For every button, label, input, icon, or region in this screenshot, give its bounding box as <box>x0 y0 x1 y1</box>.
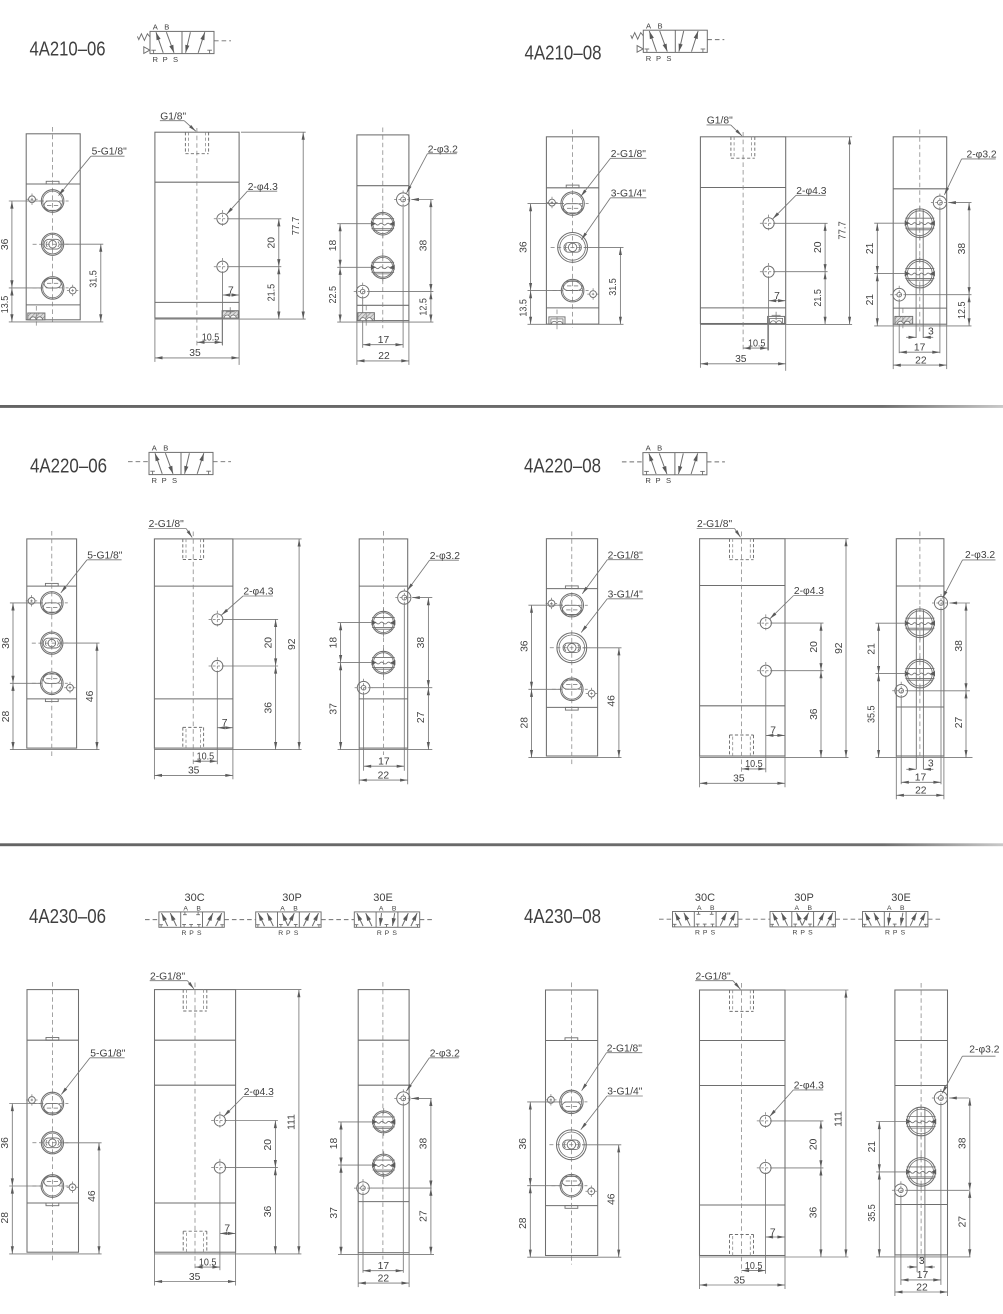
svg-text:5-G1/8": 5-G1/8" <box>92 146 127 157</box>
svg-text:36: 36 <box>809 708 820 720</box>
svg-text:B: B <box>710 905 715 912</box>
svg-text:36: 36 <box>0 1137 11 1149</box>
svg-text:46: 46 <box>87 1190 98 1202</box>
svg-text:20: 20 <box>809 1138 820 1150</box>
svg-text:27: 27 <box>419 1210 430 1222</box>
svg-text:28: 28 <box>0 1212 11 1224</box>
svg-text:77.7: 77.7 <box>837 221 848 240</box>
svg-text:27: 27 <box>958 1216 969 1228</box>
svg-text:18: 18 <box>329 1138 340 1150</box>
svg-text:4A220–08: 4A220–08 <box>524 454 601 477</box>
svg-text:R: R <box>793 930 798 937</box>
svg-text:13.5: 13.5 <box>0 296 11 314</box>
svg-text:22.5: 22.5 <box>328 286 339 304</box>
svg-text:38: 38 <box>958 1137 969 1149</box>
svg-text:22: 22 <box>378 1273 390 1284</box>
svg-text:10.5: 10.5 <box>199 1257 217 1268</box>
svg-text:A: A <box>697 905 702 912</box>
svg-text:30E: 30E <box>373 892 393 904</box>
svg-text:3: 3 <box>928 758 934 769</box>
svg-text:R: R <box>695 930 700 937</box>
svg-text:S: S <box>808 930 813 937</box>
svg-text:35: 35 <box>735 354 747 365</box>
svg-text:27: 27 <box>416 711 427 723</box>
svg-text:30P: 30P <box>794 892 814 904</box>
svg-text:38: 38 <box>954 640 965 652</box>
svg-text:46: 46 <box>607 1193 618 1205</box>
svg-text:3: 3 <box>919 1256 925 1267</box>
svg-text:37: 37 <box>328 703 339 715</box>
svg-text:36: 36 <box>809 1207 820 1219</box>
svg-text:7: 7 <box>770 1227 776 1238</box>
svg-text:21.5: 21.5 <box>813 289 824 307</box>
svg-text:B: B <box>658 21 663 30</box>
svg-text:P: P <box>656 54 661 63</box>
svg-text:35.5: 35.5 <box>866 705 877 723</box>
svg-text:P: P <box>162 476 167 485</box>
svg-text:R: R <box>645 476 651 485</box>
svg-text:20: 20 <box>813 241 824 253</box>
svg-text:4A210–08: 4A210–08 <box>525 42 602 65</box>
svg-text:28: 28 <box>519 717 530 729</box>
svg-text:R: R <box>377 930 382 937</box>
svg-text:31.5: 31.5 <box>89 270 100 288</box>
svg-text:22: 22 <box>915 355 927 366</box>
svg-text:12.5: 12.5 <box>957 301 968 319</box>
svg-text:17: 17 <box>378 335 390 346</box>
svg-text:30C: 30C <box>695 892 715 904</box>
svg-text:3: 3 <box>928 326 934 337</box>
svg-text:92: 92 <box>287 638 298 650</box>
svg-text:R: R <box>278 930 283 937</box>
svg-text:R: R <box>152 55 158 64</box>
svg-text:22: 22 <box>378 770 390 781</box>
svg-text:28: 28 <box>518 1217 529 1229</box>
svg-text:A: A <box>183 905 188 912</box>
svg-text:2-φ3.2: 2-φ3.2 <box>969 1045 999 1056</box>
svg-text:17: 17 <box>917 1270 929 1281</box>
svg-text:S: S <box>392 930 397 937</box>
svg-text:P: P <box>656 476 661 485</box>
svg-text:35.5: 35.5 <box>867 1204 878 1222</box>
svg-text:13.5: 13.5 <box>518 299 529 317</box>
svg-text:46: 46 <box>85 690 96 702</box>
svg-text:B: B <box>163 444 168 453</box>
svg-text:B: B <box>808 905 813 912</box>
svg-text:7: 7 <box>770 726 776 737</box>
svg-text:36: 36 <box>263 702 274 714</box>
svg-text:2-φ3.2: 2-φ3.2 <box>965 550 995 561</box>
svg-text:27: 27 <box>954 717 965 729</box>
svg-text:P: P <box>189 930 194 937</box>
svg-text:17: 17 <box>914 343 926 354</box>
svg-text:36: 36 <box>263 1206 274 1218</box>
svg-text:7: 7 <box>228 285 234 296</box>
svg-text:S: S <box>172 476 177 485</box>
svg-text:38: 38 <box>957 243 968 255</box>
svg-text:20: 20 <box>263 1139 274 1151</box>
svg-text:92: 92 <box>834 642 845 654</box>
svg-text:B: B <box>164 23 169 32</box>
svg-text:4A230–06: 4A230–06 <box>29 905 106 928</box>
svg-text:4A230–08: 4A230–08 <box>524 905 601 928</box>
svg-text:77.7: 77.7 <box>291 217 302 236</box>
svg-text:S: S <box>901 930 906 937</box>
svg-text:R: R <box>885 930 890 937</box>
svg-text:A: A <box>280 905 285 912</box>
svg-text:S: S <box>294 930 299 937</box>
svg-text:36: 36 <box>519 640 530 652</box>
svg-text:20: 20 <box>809 641 820 653</box>
svg-text:B: B <box>657 444 662 453</box>
svg-text:36: 36 <box>1 637 12 649</box>
svg-text:36: 36 <box>518 1138 529 1150</box>
svg-text:7: 7 <box>774 291 780 302</box>
svg-text:R: R <box>181 930 186 937</box>
svg-text:P: P <box>800 930 805 937</box>
svg-text:10.5: 10.5 <box>197 752 215 763</box>
svg-text:35: 35 <box>189 1272 201 1283</box>
svg-text:B: B <box>900 905 905 912</box>
svg-text:37: 37 <box>329 1207 340 1219</box>
svg-text:B: B <box>196 905 201 912</box>
svg-text:21: 21 <box>865 242 876 254</box>
svg-text:R: R <box>151 476 157 485</box>
svg-text:22: 22 <box>915 786 927 797</box>
svg-text:S: S <box>173 55 178 64</box>
svg-text:A: A <box>795 905 800 912</box>
svg-text:17: 17 <box>378 757 390 768</box>
svg-text:21: 21 <box>866 643 877 655</box>
svg-text:21: 21 <box>865 294 876 306</box>
svg-text:S: S <box>666 54 671 63</box>
svg-text:10.5: 10.5 <box>745 1261 763 1272</box>
svg-text:4A210–06: 4A210–06 <box>30 38 106 61</box>
svg-text:20: 20 <box>267 237 278 249</box>
svg-text:20: 20 <box>263 637 274 649</box>
svg-text:38: 38 <box>416 637 427 649</box>
svg-text:46: 46 <box>607 695 618 707</box>
svg-text:10.5: 10.5 <box>748 338 766 349</box>
svg-text:B: B <box>293 905 298 912</box>
svg-text:36: 36 <box>518 241 529 253</box>
svg-text:111: 111 <box>834 1111 845 1127</box>
svg-text:38: 38 <box>419 1138 430 1150</box>
svg-text:P: P <box>893 930 898 937</box>
svg-text:S: S <box>197 930 202 937</box>
svg-text:31.5: 31.5 <box>608 278 619 296</box>
svg-text:7: 7 <box>222 718 228 729</box>
svg-text:18: 18 <box>328 240 339 252</box>
svg-text:21: 21 <box>867 1141 878 1153</box>
svg-text:12.5: 12.5 <box>419 298 430 316</box>
svg-text:P: P <box>385 930 390 937</box>
svg-text:S: S <box>711 930 716 937</box>
svg-text:P: P <box>286 930 291 937</box>
svg-text:18: 18 <box>328 637 339 649</box>
svg-text:A: A <box>379 905 384 912</box>
svg-text:30E: 30E <box>891 892 911 904</box>
svg-text:30C: 30C <box>185 892 205 904</box>
svg-text:35: 35 <box>188 766 200 777</box>
svg-text:4A220–06: 4A220–06 <box>30 454 107 477</box>
svg-text:22: 22 <box>916 1282 928 1293</box>
svg-text:35: 35 <box>189 348 201 359</box>
svg-text:10.5: 10.5 <box>202 333 220 344</box>
svg-text:22: 22 <box>378 351 390 362</box>
svg-text:35: 35 <box>733 774 745 785</box>
svg-text:B: B <box>392 905 397 912</box>
svg-text:S: S <box>666 476 671 485</box>
svg-text:A: A <box>887 905 892 912</box>
svg-text:21.5: 21.5 <box>267 284 278 302</box>
svg-text:28: 28 <box>1 711 12 723</box>
svg-text:10.5: 10.5 <box>745 759 763 770</box>
svg-text:38: 38 <box>419 240 430 252</box>
svg-text:R: R <box>646 54 652 63</box>
svg-text:7: 7 <box>224 1224 230 1235</box>
svg-text:111: 111 <box>287 1114 298 1130</box>
svg-text:35: 35 <box>734 1275 746 1286</box>
svg-text:P: P <box>703 930 708 937</box>
svg-text:30P: 30P <box>282 892 302 904</box>
svg-text:17: 17 <box>915 773 927 784</box>
svg-text:P: P <box>163 55 168 64</box>
svg-text:36: 36 <box>0 238 11 250</box>
svg-text:17: 17 <box>378 1261 390 1272</box>
